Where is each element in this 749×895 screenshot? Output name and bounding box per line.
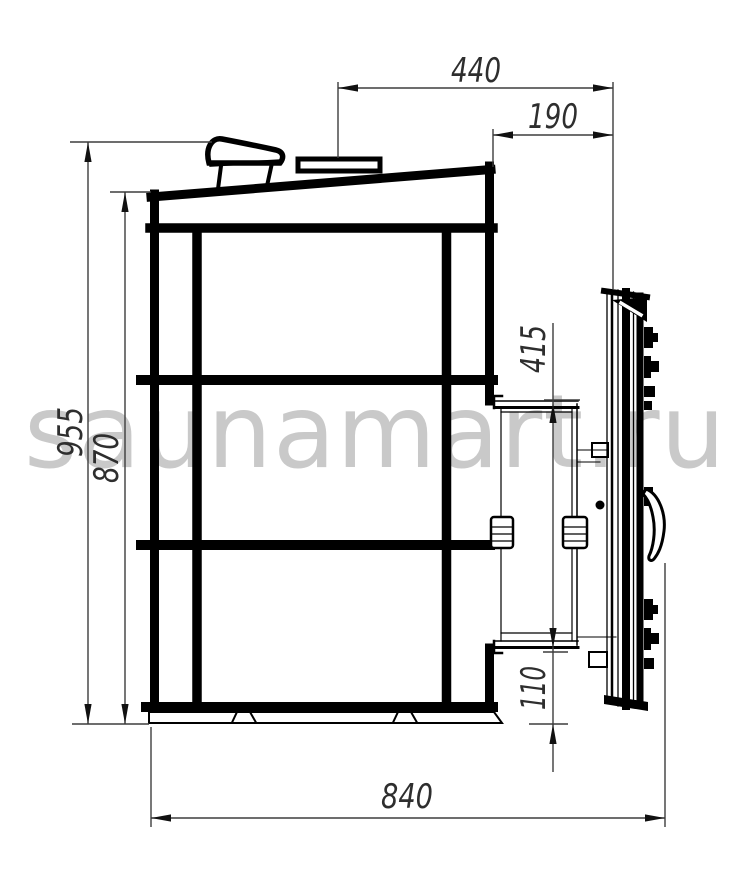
dimension-label-955: 955 bbox=[51, 407, 91, 457]
technical-drawing-page: saunamart.ru bbox=[0, 0, 749, 895]
tunnel-clamp-left bbox=[491, 517, 513, 548]
dimension-label-415: 415 bbox=[514, 325, 554, 373]
dimension-label-840: 840 bbox=[381, 777, 433, 817]
dimension-label-190: 190 bbox=[528, 97, 578, 137]
pivot-dot bbox=[596, 501, 605, 510]
base bbox=[149, 712, 502, 723]
dimension-label-440: 440 bbox=[451, 51, 501, 91]
latch-keeper-bottom bbox=[589, 652, 607, 667]
stove-side-view-drawing: saunamart.ru bbox=[0, 0, 749, 895]
dimension-label-870: 870 bbox=[87, 433, 127, 483]
top-plate bbox=[298, 159, 380, 171]
dimension-label-110: 110 bbox=[514, 666, 554, 710]
watermark: saunamart.ru bbox=[24, 373, 726, 492]
tunnel-clamp-right bbox=[563, 517, 587, 548]
